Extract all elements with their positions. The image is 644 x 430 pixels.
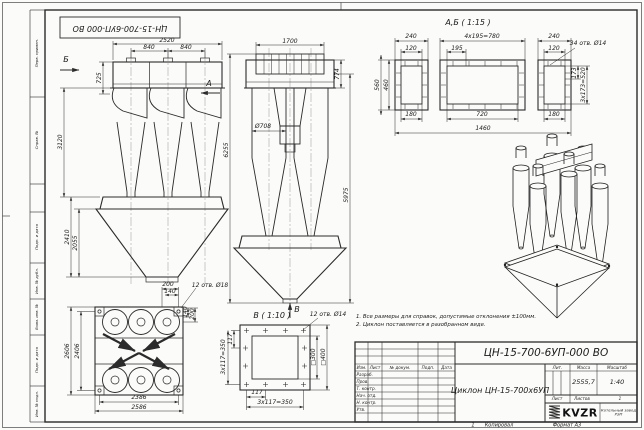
margin-label-vzam-inv: Взам. инв. №: [35, 304, 39, 330]
tb-header-izm: Изм.: [357, 365, 367, 369]
dim-120-right: 120: [548, 46, 559, 52]
dim-3x117-bottom: 3х117=350: [257, 400, 292, 406]
holes-note-12-14: 12 отв. Ø14: [310, 312, 346, 318]
dim-3x117-left: 3х117=350: [221, 339, 227, 374]
dim-117-left: 117: [228, 333, 234, 344]
tb-scale-value: 1:40: [610, 379, 625, 386]
dim-725: 725: [97, 72, 103, 83]
tb-mass-label: Масса: [577, 365, 590, 369]
title-designation: ЦН-15-700-6УП-000 ВО: [484, 348, 608, 359]
tb-mass-value: 2555,7: [572, 379, 595, 386]
margin-label-inv-podl: Инв. № подл.: [35, 391, 39, 417]
dim-6255: 6255: [224, 142, 230, 157]
dim-560: 560: [375, 79, 381, 90]
dim-2055: 2055: [73, 235, 79, 250]
dim-1460: 1460: [475, 126, 490, 132]
tb-row-utv: Утв.: [357, 407, 366, 411]
dim-3x173: 3х173=520: [581, 67, 587, 102]
dim-sq400: □400: [321, 348, 327, 365]
drawing-sheet: ЦН-15-700-6УП-000 ВО Перв. примен. Справ…: [0, 0, 644, 430]
tb-listov-label: Листов: [574, 397, 590, 401]
dim-200-side: 200: [190, 308, 196, 319]
dim-180-left: 180: [405, 112, 416, 118]
dim-2520: 2520: [159, 38, 174, 44]
front-view: [60, 41, 228, 284]
dim-117-bottom: 117: [251, 390, 262, 396]
kvzr-logo-text: KVZR: [562, 407, 597, 418]
dim-2386: 2386: [131, 395, 146, 401]
dim-140-top: 140: [164, 289, 175, 295]
dim-460: 460: [384, 79, 390, 90]
dim-2410: 2410: [65, 229, 71, 244]
iso-view: [504, 134, 610, 318]
tb-lit-label: Лит.: [553, 365, 563, 369]
tb-list-label: Лист: [552, 397, 563, 401]
section-arrow-b-label: Б: [63, 56, 69, 64]
dim-774: 774: [335, 68, 341, 79]
tb-listov-value: 1: [619, 397, 622, 401]
margin-label-podp-data-2: Подп. и дата: [35, 347, 39, 373]
tb-header-podp: Подп.: [422, 365, 435, 369]
tb-header-data: Дата: [441, 365, 452, 369]
tb-scale-label: Масштаб: [607, 365, 627, 369]
dim-195: 195: [451, 46, 462, 52]
tb-row-razrab: Разраб.: [357, 372, 373, 376]
dim-173: 173: [572, 67, 578, 78]
section-arrow-a-label: А: [206, 80, 211, 88]
dim-4x195: 4х195=780: [464, 34, 499, 40]
view-v-title: В ( 1:10 ): [253, 312, 290, 320]
title-name: Циклон ЦН-15-700х6УП: [451, 387, 549, 395]
dim-3120: 3120: [58, 134, 64, 149]
note-2: 2. Циклон поставляется в разобранном вид…: [356, 322, 486, 330]
tb-header-doc: № докум.: [390, 365, 411, 369]
side-view: [227, 42, 354, 318]
section-ab-title: А,Б ( 1:15 ): [445, 19, 490, 27]
dim-2606: 2606: [65, 343, 71, 358]
dim-5975: 5975: [344, 187, 350, 202]
tb-header-list: Лист: [370, 365, 381, 369]
holes-note-34: 34 отв. Ø14: [570, 41, 606, 47]
dim-120-left: 120: [405, 46, 416, 52]
tb-row-nachotd: Нач. отд.: [357, 393, 377, 397]
dim-240-right: 240: [548, 34, 559, 40]
copy-number: 1: [471, 423, 474, 428]
margin-label-podp-data-1: Подп. и дата: [35, 224, 39, 250]
dim-708: Ø708: [255, 124, 271, 130]
dim-840-right: 840: [180, 45, 191, 51]
tb-row-tkontr: Т. контр.: [357, 386, 376, 390]
dim-840-left: 840: [143, 45, 154, 51]
kvzr-logo-caption: Котельный завод РЭП: [600, 408, 638, 417]
format-label: Формат А3: [553, 423, 581, 428]
tb-row-nkontr: Н. контр.: [357, 400, 377, 404]
dim-1700: 1700: [282, 39, 297, 45]
dim-2586: 2586: [131, 405, 146, 411]
margin-label-sprav-no: Справ. №: [35, 131, 39, 149]
dim-240-left: 240: [405, 34, 416, 40]
dim-sq300: □300: [311, 348, 317, 365]
note-1: 1. Все размеры для справок, допустимые о…: [356, 314, 536, 322]
copied-label: Копировал: [485, 423, 514, 428]
holes-note-12-18: 12 отв. Ø18: [192, 283, 228, 289]
view-arrow-v-label: В: [294, 306, 300, 314]
dim-180-right: 180: [548, 112, 559, 118]
section-ab-view: [378, 38, 590, 136]
tb-row-prov: Пров.: [357, 379, 369, 383]
dim-2406: 2406: [75, 343, 81, 358]
dim-720: 720: [476, 112, 487, 118]
margin-label-perv-primen: Перв. примен.: [35, 39, 39, 68]
margin-label-inv-dubl: Инв. № дубл.: [35, 268, 39, 294]
kvzr-coil-icon: [549, 406, 560, 418]
stamp-designation: ЦН-15-700-6УП-000 ВО: [73, 24, 168, 32]
